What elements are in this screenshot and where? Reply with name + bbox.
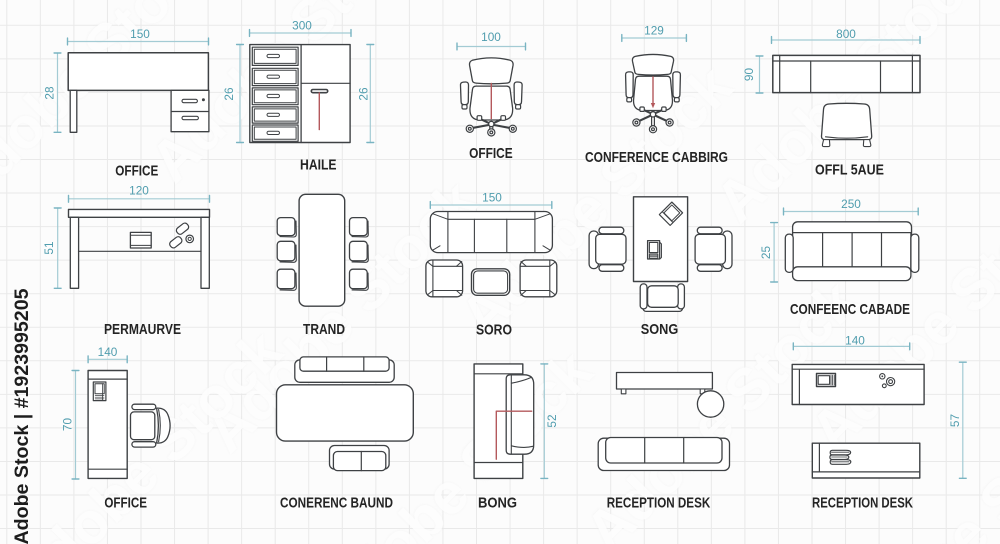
svg-text:RECEPTION DESK: RECEPTION DESK xyxy=(607,496,711,512)
svg-text:RECEPTION DESK: RECEPTION DESK xyxy=(812,496,913,512)
svg-text:300: 300 xyxy=(292,19,312,33)
svg-text:57: 57 xyxy=(948,414,962,427)
svg-text:26: 26 xyxy=(222,87,236,101)
svg-text:100: 100 xyxy=(481,30,501,44)
svg-text:CONERENC BAUND: CONERENC BAUND xyxy=(280,496,393,512)
svg-text:800: 800 xyxy=(836,27,856,41)
svg-text:Adobe Stock | #1923995205: Adobe Stock | #1923995205 xyxy=(11,288,33,544)
svg-text:OFFICE: OFFICE xyxy=(115,164,158,180)
svg-text:90: 90 xyxy=(742,68,756,82)
svg-text:70: 70 xyxy=(61,418,75,432)
svg-text:TRAND: TRAND xyxy=(303,322,345,338)
svg-text:120: 120 xyxy=(129,184,149,198)
svg-text:140: 140 xyxy=(845,334,865,348)
svg-text:150: 150 xyxy=(130,27,150,41)
svg-text:52: 52 xyxy=(545,414,559,427)
svg-text:51: 51 xyxy=(42,241,56,254)
svg-text:BONG: BONG xyxy=(478,496,517,512)
svg-text:OFFL 5AUE: OFFL 5AUE xyxy=(815,163,884,179)
svg-text:CONFEENC CABADE: CONFEENC CABADE xyxy=(790,302,910,318)
svg-text:250: 250 xyxy=(841,197,861,211)
svg-text:PERMAURVE: PERMAURVE xyxy=(104,322,181,338)
svg-text:OFFICE: OFFICE xyxy=(104,496,147,512)
svg-text:129: 129 xyxy=(644,24,664,38)
svg-text:25: 25 xyxy=(759,246,773,260)
svg-text:150: 150 xyxy=(482,191,502,205)
svg-text:SORO: SORO xyxy=(476,323,512,339)
svg-text:OFFICE: OFFICE xyxy=(469,146,513,162)
svg-text:28: 28 xyxy=(43,86,57,100)
svg-text:26: 26 xyxy=(357,87,371,101)
svg-text:SONG: SONG xyxy=(641,322,679,338)
svg-text:HAILE: HAILE xyxy=(300,157,337,173)
svg-text:CONFERENCE CABBIRG: CONFERENCE CABBIRG xyxy=(585,150,728,166)
svg-text:140: 140 xyxy=(98,345,118,359)
